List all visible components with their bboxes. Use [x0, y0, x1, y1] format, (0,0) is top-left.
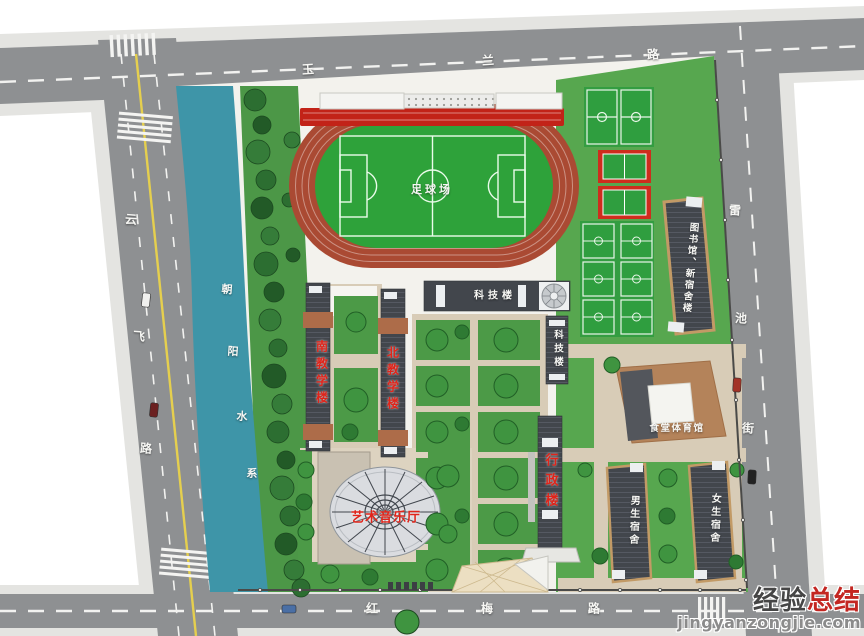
canteen-gym-label: 食堂体育馆 [649, 420, 704, 434]
left-road-name-char: 路 [139, 439, 152, 457]
basketball-courts-top [584, 87, 654, 147]
top-road-name-char: 兰 [481, 51, 494, 69]
girls-dorm-label: 女生宿舍 [706, 493, 723, 545]
watermark-brand-dark: 经验 [753, 586, 807, 616]
grandstand [300, 93, 564, 126]
river-name-char: 系 [246, 465, 258, 482]
art-music-hall-label: 艺术音乐厅 [351, 507, 421, 526]
street-tree [395, 610, 419, 634]
science-building-wing-label: 科技楼 [550, 330, 564, 371]
south-teaching-label: 南教学楼 [314, 340, 331, 408]
river-name-char: 阳 [227, 343, 239, 360]
boys-dorm-label: 男生宿舍 [625, 495, 642, 547]
top-road-name-char: 玉 [301, 60, 314, 78]
basketball-courts-lower [580, 221, 654, 337]
north-teaching-label: 北教学楼 [385, 346, 402, 414]
campus-master-plan: 玉 兰 路 云 飞 路 雷 池 街 红 梅 路 朝 阳 水 系 足球场 科技楼 … [0, 0, 864, 636]
watermark-brand-red: 总结 [807, 586, 861, 616]
bottom-road-name-char: 梅 [481, 600, 493, 617]
watermark: 经验总结 jingyanzongjie.com [677, 588, 861, 631]
bottom-road-name-char: 红 [366, 600, 378, 617]
science-building-label: 科技楼 [474, 287, 516, 302]
admin-building-label: 行政楼 [541, 453, 560, 513]
left-road-name-char: 飞 [132, 327, 145, 345]
watermark-site-url: jingyanzongjie.com [677, 615, 861, 631]
right-road-name-char: 街 [742, 419, 755, 437]
river-name-char: 水 [236, 408, 248, 425]
football-field-label: 足球场 [411, 181, 453, 197]
bottom-road-name-char: 路 [588, 600, 600, 617]
top-road-name-char: 路 [646, 45, 659, 63]
watermark-brand: 经验总结 [677, 588, 861, 615]
left-road-name-char: 云 [124, 210, 137, 228]
right-road-name-char: 雷 [729, 201, 742, 219]
river-name-char: 朝 [221, 281, 233, 298]
right-road-name-char: 池 [735, 309, 748, 327]
